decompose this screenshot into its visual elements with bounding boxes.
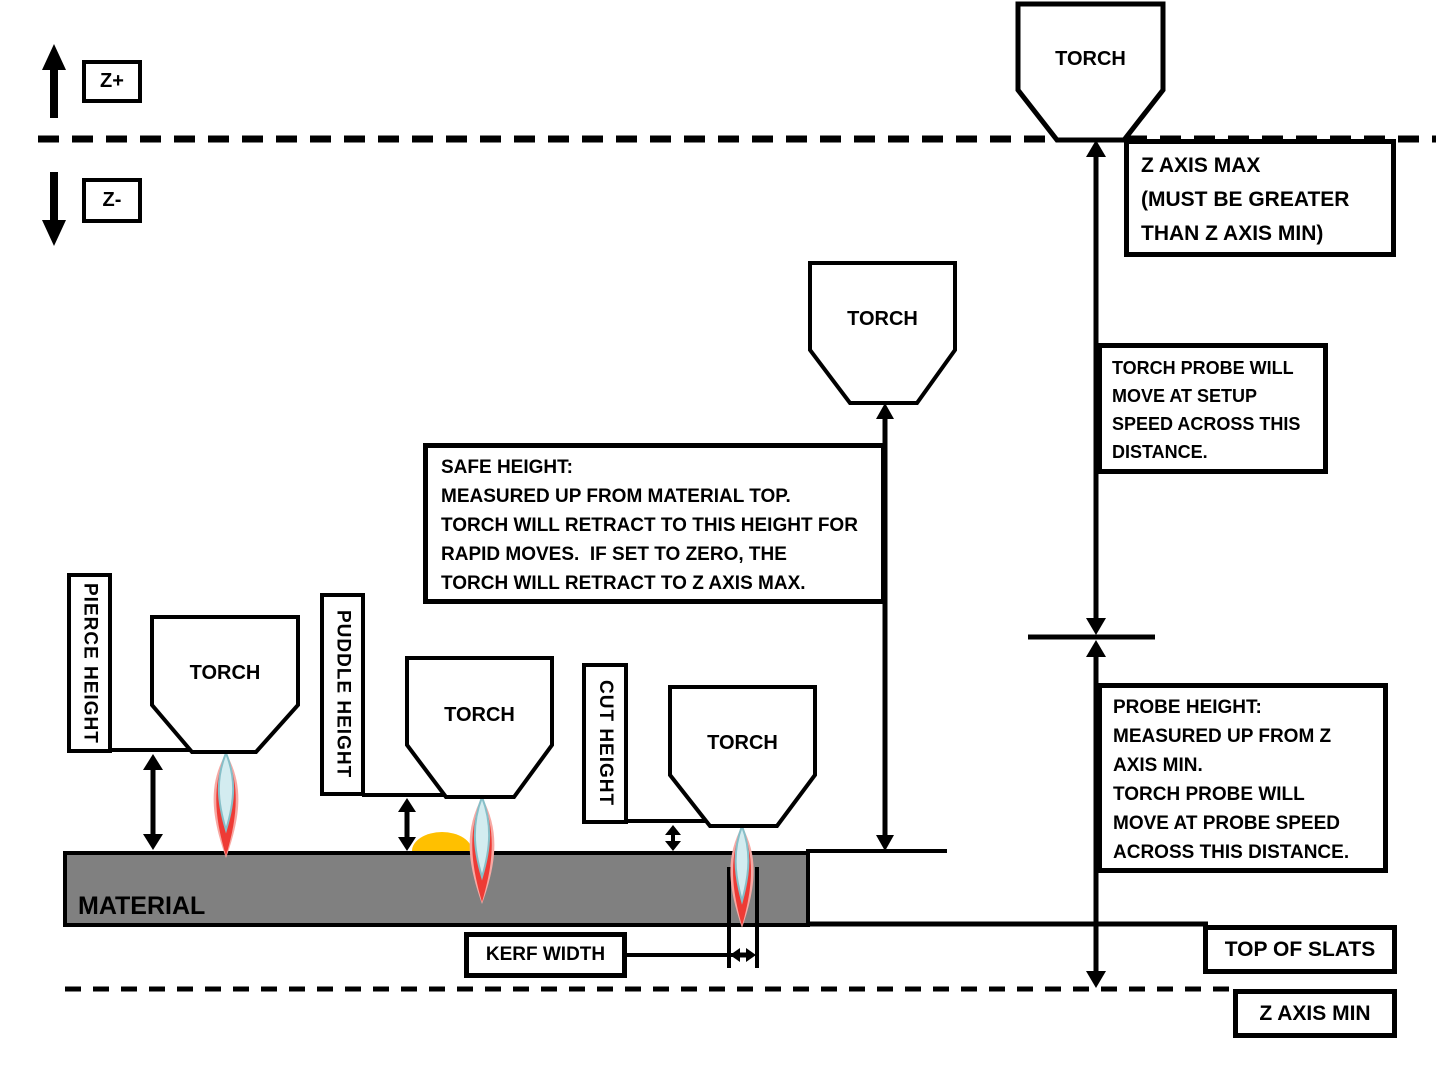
setup-speed-callout: TORCH PROBE WILL MOVE AT SETUP SPEED ACR… (1097, 343, 1328, 474)
safe-torch-body (810, 263, 955, 403)
material-label: MATERIAL (78, 892, 205, 921)
pierce-torch-label: TORCH (152, 662, 298, 685)
safe-torch-label: TORCH (810, 308, 955, 331)
cut-height-label-box: CUT HEIGHT (582, 663, 628, 824)
pierce-height-arrow (143, 754, 163, 850)
z-plus-label: Z+ (100, 70, 124, 93)
max-torch-label: TORCH (1018, 48, 1163, 71)
probe-height-callout: PROBE HEIGHT: MEASURED UP FROM Z AXIS MI… (1097, 683, 1388, 873)
puddle-torch-body (407, 658, 552, 797)
z-minus-label-box: Z- (82, 178, 142, 223)
kerf-width-arrow (730, 948, 756, 962)
kerf-width-label-box: KERF WIDTH (464, 932, 627, 978)
pierce-height-label-box: PIERCE HEIGHT (67, 573, 112, 753)
cut-height-label: CUT HEIGHT (594, 680, 616, 806)
torch-height-diagram: Z+ Z- TORCH TORCH TORCH TORCH TORCH MATE… (0, 0, 1436, 1078)
z-axis-max-callout: Z AXIS MAX (MUST BE GREATER THAN Z AXIS … (1124, 139, 1396, 257)
puddle-icon (412, 832, 472, 851)
cut-height-arrow (665, 825, 681, 851)
z-plus-arrow-icon (42, 44, 66, 118)
z-axis-min-label: Z AXIS MIN (1259, 1002, 1370, 1026)
puddle-height-label: PUDDLE HEIGHT (332, 610, 354, 778)
pierce-height-label: PIERCE HEIGHT (79, 583, 101, 744)
kerf-width-label: KERF WIDTH (486, 944, 605, 966)
puddle-torch-label: TORCH (407, 704, 552, 727)
top-of-slats-label: TOP OF SLATS (1225, 938, 1376, 962)
z-plus-label-box: Z+ (82, 60, 142, 103)
max-torch-body (1018, 4, 1163, 140)
pierce-flame-icon (214, 753, 239, 858)
z-minus-arrow-icon (42, 172, 66, 246)
safe-height-callout: SAFE HEIGHT: MEASURED UP FROM MATERIAL T… (423, 443, 886, 604)
z-axis-min-label-box: Z AXIS MIN (1233, 989, 1397, 1038)
cut-torch-label: TORCH (670, 732, 815, 755)
z-minus-label: Z- (103, 189, 122, 212)
puddle-height-label-box: PUDDLE HEIGHT (320, 593, 365, 796)
top-of-slats-label-box: TOP OF SLATS (1203, 925, 1397, 974)
cut-torch-body (670, 687, 815, 826)
puddle-height-arrow (398, 798, 416, 851)
